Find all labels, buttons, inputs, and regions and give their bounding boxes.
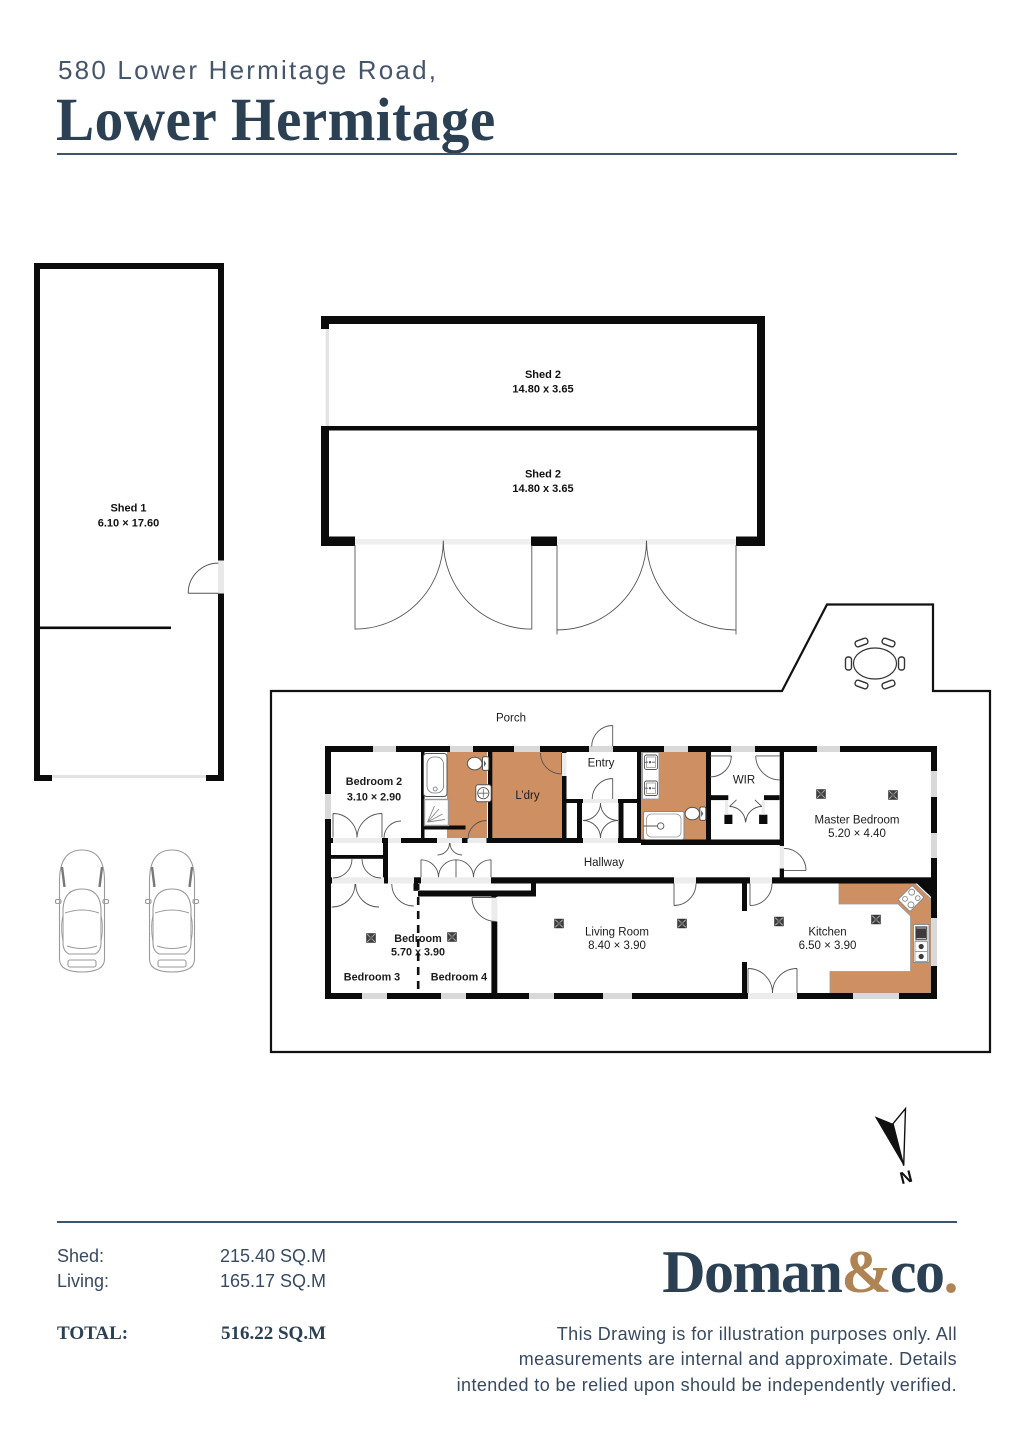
svg-text:5.20 × 4.40: 5.20 × 4.40 bbox=[828, 828, 886, 840]
svg-text:Bedroom: Bedroom bbox=[394, 933, 441, 945]
svg-text:14.80 x 3.65: 14.80 x 3.65 bbox=[512, 384, 573, 396]
svg-text:8.40 × 3.90: 8.40 × 3.90 bbox=[588, 940, 646, 952]
svg-text:5.70 x 3.90: 5.70 x 3.90 bbox=[391, 947, 445, 959]
svg-text:Entry: Entry bbox=[588, 758, 615, 770]
svg-text:6.50 × 3.90: 6.50 × 3.90 bbox=[799, 940, 857, 952]
svg-text:L’dry: L’dry bbox=[515, 790, 540, 802]
svg-text:Shed 2: Shed 2 bbox=[525, 369, 561, 381]
svg-text:Bedroom 3: Bedroom 3 bbox=[344, 972, 400, 984]
svg-text:Bedroom 2: Bedroom 2 bbox=[346, 776, 402, 788]
svg-text:14.80 x 3.65: 14.80 x 3.65 bbox=[512, 483, 573, 495]
svg-text:N: N bbox=[898, 1167, 915, 1188]
svg-text:Living Room: Living Room bbox=[585, 927, 649, 939]
svg-text:WIR: WIR bbox=[733, 775, 755, 787]
svg-text:3.10 × 2.90: 3.10 × 2.90 bbox=[347, 792, 401, 804]
svg-text:Master Bedroom: Master Bedroom bbox=[814, 815, 899, 827]
svg-text:6.10 × 17.60: 6.10 × 17.60 bbox=[98, 518, 159, 530]
svg-text:Kitchen: Kitchen bbox=[808, 927, 846, 939]
svg-text:Porch: Porch bbox=[496, 713, 526, 725]
svg-text:Hallway: Hallway bbox=[584, 857, 625, 869]
svg-text:Bedroom 4: Bedroom 4 bbox=[431, 972, 487, 984]
svg-text:Shed 1: Shed 1 bbox=[110, 503, 146, 515]
svg-text:Shed 2: Shed 2 bbox=[525, 469, 561, 481]
